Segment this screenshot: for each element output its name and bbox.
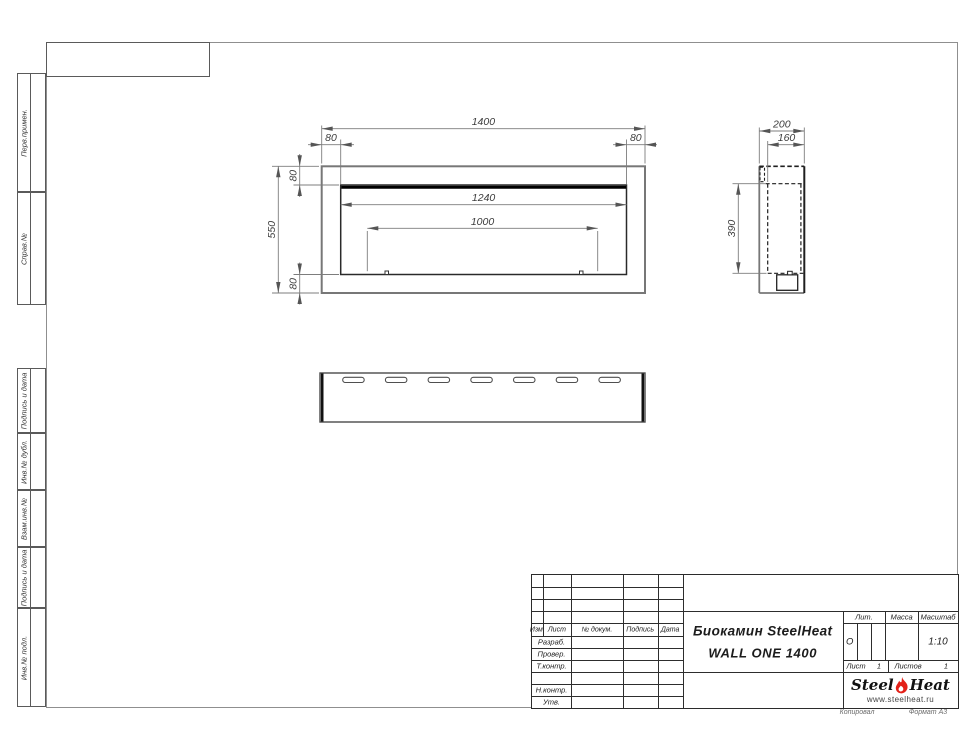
dim-front-burner-width: 1000: [471, 216, 495, 228]
col-header-data: Дата: [661, 626, 679, 633]
front-dim-arrows: [276, 127, 656, 305]
col-header-podpis: Подпись: [626, 626, 654, 633]
sheet-value: 1: [877, 661, 881, 670]
sheet-label: Лист: [846, 661, 865, 670]
role-nkontr: Н.контр.: [536, 685, 568, 694]
grid-line: [571, 575, 572, 708]
side-view: 200 160 390: [726, 119, 804, 294]
col-header-list: Лист: [548, 626, 566, 633]
title-block: Изм. Лист № докум. Подпись Дата Разраб. …: [531, 574, 959, 709]
lit-header: Лит.: [855, 613, 873, 622]
flame-icon: [895, 677, 909, 694]
sheets-label: Листов: [894, 661, 921, 670]
front-view: 1400 80 80 1240 1000 550 80 80: [266, 116, 657, 304]
role-prover: Провер.: [538, 649, 566, 658]
logo-row: Steel Heat: [851, 677, 950, 694]
logo-site-url: www.steelheat.ru: [867, 695, 934, 704]
front-dim-lines: [272, 126, 657, 305]
dim-front-total-height: 550: [266, 221, 278, 239]
grid-line: [871, 623, 872, 659]
side-dim-arrows: [736, 129, 804, 273]
sheets-value: 1: [944, 661, 948, 670]
logo-text-steel: Steel: [851, 678, 894, 693]
role-tkontr: Т.контр.: [536, 661, 566, 670]
grid-line: [888, 660, 889, 672]
scale-value: 1:10: [928, 636, 947, 647]
dim-front-frame-bottom: 80: [287, 278, 299, 290]
top-view: [320, 373, 645, 422]
grid-line: [532, 623, 683, 624]
drawing-sheet: Перв.примен. Справ.№ Подпись и дата Инв.…: [0, 0, 970, 749]
col-header-dokum: № докум.: [581, 626, 612, 633]
side-dim-lines: [733, 128, 805, 274]
logo-text-heat: Heat: [910, 678, 950, 693]
dim-front-frame-top: 80: [287, 170, 299, 182]
grid-line: [857, 623, 858, 659]
dim-front-total-width: 1400: [472, 116, 496, 128]
dim-side-opening-height: 390: [726, 220, 738, 238]
steelheat-logo: Steel Heat www.steelheat.ru: [843, 672, 958, 708]
grid-line: [843, 623, 958, 624]
product-model: WALL ONE 1400: [708, 646, 817, 661]
footer-format: Формат А3: [909, 709, 947, 716]
product-name: Биокамин SteelHeat: [693, 624, 832, 639]
lit-value: О: [846, 636, 853, 647]
dim-front-opening-width: 1240: [472, 192, 496, 204]
dim-front-frame-right: 80: [630, 132, 642, 144]
grid-line: [918, 611, 919, 659]
side-burner-box: [777, 275, 798, 291]
grid-line: [683, 575, 684, 708]
dim-side-inner-depth: 160: [778, 132, 796, 144]
footer-kopiroval: Копировал: [840, 709, 875, 716]
dim-front-frame-left: 80: [325, 132, 337, 144]
grid-line: [623, 575, 624, 708]
role-razrab: Разраб.: [538, 637, 565, 646]
burner-end-right: [580, 271, 584, 275]
mass-header: Масса: [891, 613, 913, 622]
grid-line: [532, 599, 683, 600]
role-utv: Утв.: [543, 698, 560, 707]
grid-line: [885, 611, 886, 659]
col-header-izm: Изм.: [530, 626, 545, 633]
burner-end-left: [385, 271, 389, 275]
dim-side-depth: 200: [772, 119, 791, 131]
side-burner-notch: [788, 271, 793, 275]
side-bracket-hidden: [760, 167, 765, 182]
grid-line: [658, 575, 659, 708]
side-hidden-lines: [766, 184, 804, 274]
grid-line: [532, 587, 683, 588]
scale-header: Масштаб: [920, 613, 955, 622]
